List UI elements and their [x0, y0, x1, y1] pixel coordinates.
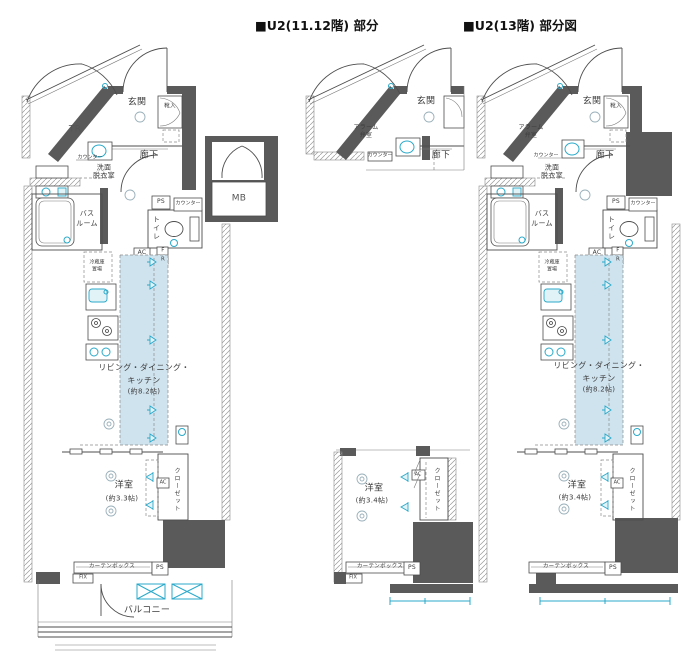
room-label-entrance: 玄関 — [417, 98, 436, 107]
room-label-entrance: 玄関 — [128, 99, 147, 108]
label-r: R — [616, 257, 620, 263]
room-label-washroom-1: 洗面 — [97, 165, 112, 172]
label-counter: カウンター — [630, 202, 655, 207]
room-label-bedroom: 洋室 — [365, 485, 384, 494]
plan-left-linework — [22, 45, 278, 650]
room-label-ldk-size: (約8.2帖) — [583, 387, 616, 394]
label-counter: カウンター — [175, 202, 200, 207]
room-label-bedroom: 洋室 — [115, 482, 134, 491]
label-f: F — [161, 248, 164, 254]
label-ac-unit: AC — [160, 481, 167, 486]
label-ps: PS — [408, 565, 416, 571]
room-label-bedroom-size: (約3.4帖) — [356, 498, 389, 505]
room-label-ldk-size: (約8.2帖) — [128, 389, 161, 396]
label-ps: PS — [612, 199, 620, 205]
label-r: R — [161, 257, 165, 263]
label-ps: PS — [156, 565, 164, 571]
label-ac-unit: AC — [415, 473, 422, 478]
label-ps: PS — [157, 199, 165, 205]
room-label-toilet: トイレ — [153, 215, 160, 241]
label-counter: カウンター — [533, 154, 558, 159]
room-label-corridor: 廊下 — [596, 152, 615, 161]
label-ac: AC — [138, 250, 147, 256]
label-fridge-2: 置場 — [92, 268, 102, 273]
label-f: F — [616, 248, 619, 254]
label-fix-window: FIX — [79, 576, 87, 581]
room-label-balcony: バルコニー — [124, 607, 170, 616]
label-ps: PS — [609, 565, 617, 571]
room-label-entrance: 玄関 — [583, 98, 602, 107]
room-label-ldk-1: リビング・ダイニング・ — [553, 362, 644, 370]
room-label-bath-2: ルーム — [76, 221, 98, 228]
label-counter: カウンター — [77, 156, 102, 161]
label-counter: カウンター — [367, 154, 392, 159]
label-curtain-box: カーテンボックス — [357, 564, 403, 570]
plan-mid-linework — [306, 45, 473, 605]
room-label-closet: クローゼット — [433, 468, 439, 513]
room-label-bedroom-size: (約3.3帖) — [106, 496, 139, 503]
room-label-bath-2: ルーム — [531, 221, 553, 228]
label-fridge-1: 冷蔵庫 — [544, 261, 559, 266]
room-label-shoebox: 靴入 — [610, 104, 622, 110]
room-label-bath-1: バス — [80, 211, 95, 218]
room-label-ldk-2: キッチン — [127, 377, 160, 385]
label-fridge-1: 冷蔵庫 — [89, 261, 104, 266]
room-label-washroom-2: 脱衣室 — [541, 173, 563, 180]
room-label-alarm-2: 弁室 — [525, 133, 538, 139]
label-fix-window: FIX — [349, 576, 357, 581]
room-label-bath-1: バス — [535, 211, 550, 218]
room-label-closet: クローゼット — [628, 468, 634, 513]
room-label-corridor: 廊下 — [432, 152, 451, 161]
label-curtain-box: カーテンボックス — [89, 564, 135, 570]
room-label-meterbox: MB — [232, 195, 247, 204]
label-ac-unit: AC — [614, 481, 621, 486]
title-mid: ■U2(11.12階) 部分 — [255, 15, 378, 34]
room-label-bedroom: 洋室 — [568, 482, 587, 491]
plan-right-linework — [477, 45, 680, 605]
room-label-toilet: トイレ — [608, 215, 615, 241]
room-label-washroom-2: 脱衣室 — [93, 173, 115, 180]
label-fridge-2: 置場 — [547, 268, 557, 273]
title-right: ■U2(13階) 部分図 — [463, 15, 577, 34]
room-label-ldk-2: キッチン — [582, 375, 615, 383]
room-label-corridor: 廊下 — [140, 152, 159, 161]
room-label-alarm-1: アラーム — [518, 125, 543, 131]
label-curtain-box: カーテンボックス — [543, 564, 589, 570]
room-label-trunk: TR — [69, 126, 81, 135]
room-label-closet: クローゼット — [173, 468, 179, 513]
floorplan-page: ■U2(11.12階) 部分 ■U2(13階) 部分図 TR 玄関 靴入 MB … — [0, 0, 700, 665]
room-label-alarm-1: アラーム — [353, 125, 378, 131]
room-label-washroom-1: 洗面 — [545, 165, 560, 172]
room-label-ldk-1: リビング・ダイニング・ — [98, 364, 189, 372]
room-label-bedroom-size: (約3.4帖) — [559, 495, 592, 502]
room-label-shoebox: 靴入 — [164, 104, 176, 110]
label-ac: AC — [593, 250, 602, 256]
room-label-alarm-2: 弁室 — [360, 133, 373, 139]
